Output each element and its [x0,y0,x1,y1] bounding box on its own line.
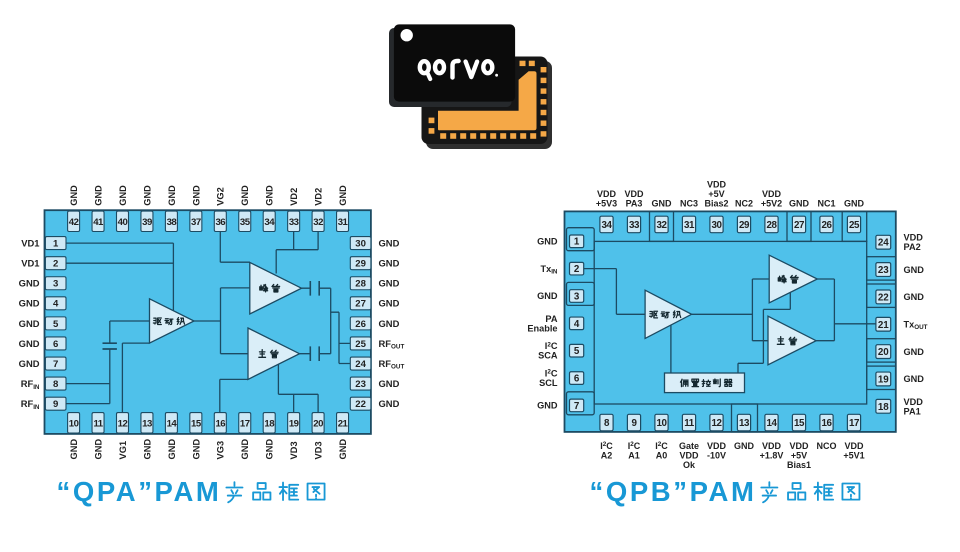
svg-text:VDD-10V: VDD-10V [707,441,727,461]
svg-text:VD2: VD2 [314,188,324,206]
svg-text:24: 24 [355,359,366,370]
svg-text:2: 2 [574,264,580,275]
svg-text:29: 29 [739,220,750,231]
svg-text:20: 20 [878,347,889,358]
svg-text:24: 24 [878,238,889,249]
svg-text:NC1: NC1 [817,199,835,209]
svg-text:GND: GND [19,298,40,309]
svg-text:GND: GND [537,401,558,411]
svg-text:VD2: VD2 [289,188,299,206]
svg-text:VDD+1.8V: VDD+1.8V [760,441,784,461]
svg-text:6: 6 [53,339,58,350]
svg-text:7: 7 [574,401,580,412]
svg-text:GND: GND [904,292,925,302]
svg-text:23: 23 [878,265,889,276]
svg-text:19: 19 [289,419,299,430]
svg-text:8: 8 [53,379,59,390]
svg-text:GND: GND [652,199,673,209]
svg-text:35: 35 [240,217,251,228]
svg-text:GND: GND [379,318,400,329]
svg-text:7: 7 [53,359,58,370]
svg-text:3: 3 [53,279,58,290]
svg-text:4: 4 [574,319,580,330]
svg-text:VG2: VG2 [216,187,226,206]
svg-text:GND: GND [904,374,925,384]
svg-text:I2CA2: I2CA2 [600,441,613,461]
svg-text:11: 11 [684,418,695,429]
svg-text:GND: GND [904,265,925,275]
svg-text:22: 22 [878,292,889,303]
svg-text:14: 14 [167,419,178,430]
svg-text:31: 31 [338,217,349,228]
svg-text:1: 1 [574,237,580,248]
svg-text:4: 4 [53,299,59,310]
svg-text:6: 6 [574,373,580,384]
svg-text:GND: GND [379,398,400,409]
svg-text:16: 16 [215,419,225,430]
svg-text:33: 33 [629,220,640,231]
svg-text:11: 11 [93,419,103,430]
svg-text:GND: GND [537,237,558,247]
svg-text:GND: GND [167,185,177,206]
svg-text:2: 2 [53,259,58,270]
svg-text:GND: GND [191,185,201,206]
svg-text:9: 9 [53,399,58,410]
svg-text:NCO: NCO [817,441,837,451]
svg-text:13: 13 [142,419,152,430]
svg-text:34: 34 [264,217,275,228]
svg-text:21: 21 [878,320,889,331]
svg-text:10: 10 [656,418,667,429]
svg-text:42: 42 [69,217,79,228]
svg-text:21: 21 [338,419,349,430]
svg-text:26: 26 [355,319,366,330]
svg-text:19: 19 [878,374,889,385]
svg-text:VDDPA1: VDDPA1 [904,397,924,417]
svg-text:“QPA”PAM: “QPA”PAM [57,476,222,507]
svg-text:25: 25 [849,220,860,231]
svg-text:GND: GND [69,439,79,460]
svg-text:30: 30 [711,220,722,231]
svg-text:GND: GND [191,439,201,460]
svg-text:GND: GND [904,347,925,357]
svg-text:NC3: NC3 [680,199,698,209]
svg-text:GND: GND [19,318,40,329]
svg-text:32: 32 [656,220,667,231]
svg-text:12: 12 [711,418,722,429]
svg-text:15: 15 [191,419,202,430]
svg-text:VG1: VG1 [118,441,128,460]
svg-text:28: 28 [766,220,777,231]
svg-text:GND: GND [789,199,810,209]
svg-text:GND: GND [265,185,275,206]
svg-text:29: 29 [355,259,366,270]
svg-text:20: 20 [313,419,323,430]
svg-text:27: 27 [355,299,366,310]
svg-text:12: 12 [118,419,128,430]
svg-text:32: 32 [313,217,323,228]
svg-text:GND: GND [118,185,128,206]
svg-text:VDD+5V3: VDD+5V3 [596,189,617,209]
svg-text:VD1: VD1 [21,258,39,269]
svg-text:GND: GND [844,199,865,209]
svg-text:GND: GND [379,278,400,289]
svg-text:15: 15 [794,418,805,429]
svg-text:GND: GND [19,358,40,369]
svg-text:23: 23 [355,379,366,390]
svg-text:31: 31 [684,220,695,231]
svg-text:18: 18 [264,419,275,430]
svg-text:GND: GND [265,439,275,460]
svg-text:GND: GND [537,291,558,301]
svg-text:I2CA1: I2CA1 [628,441,641,461]
svg-text:VDD+5V1: VDD+5V1 [843,441,864,461]
svg-text:39: 39 [142,217,152,228]
svg-text:VD1: VD1 [21,238,39,249]
svg-text:14: 14 [766,418,777,429]
svg-text:GND: GND [379,238,400,249]
svg-text:“QPB”PAM: “QPB”PAM [590,476,757,507]
svg-text:30: 30 [355,239,366,250]
svg-text:36: 36 [215,217,225,228]
svg-text:NC2: NC2 [735,199,753,209]
svg-text:GND: GND [69,185,79,206]
svg-text:GND: GND [167,439,177,460]
svg-text:VG3: VG3 [216,441,226,460]
svg-text:22: 22 [355,399,366,410]
svg-text:VDDPA2: VDDPA2 [904,233,924,253]
svg-text:I2CA0: I2CA0 [655,441,668,461]
svg-text:GND: GND [338,439,348,460]
svg-text:GND: GND [379,378,400,389]
svg-text:GND: GND [19,278,40,289]
svg-text:GND: GND [93,439,103,460]
svg-text:40: 40 [118,217,128,228]
svg-text:34: 34 [601,220,612,231]
svg-text:GND: GND [338,185,348,206]
svg-text:17: 17 [240,419,250,430]
svg-text:18: 18 [878,402,889,413]
svg-text:3: 3 [574,291,580,302]
svg-text:41: 41 [93,217,104,228]
svg-text:VDD+5V2: VDD+5V2 [761,189,782,209]
svg-text:28: 28 [355,279,366,290]
svg-text:26: 26 [821,220,832,231]
svg-text:1: 1 [53,239,59,250]
svg-text:VD3: VD3 [289,441,299,459]
svg-text:GND: GND [142,439,152,460]
svg-text:VD3: VD3 [314,441,324,459]
svg-text:10: 10 [69,419,79,430]
svg-text:33: 33 [289,217,299,228]
svg-text:38: 38 [167,217,178,228]
svg-text:GND: GND [379,258,400,269]
svg-text:27: 27 [794,220,805,231]
svg-text:25: 25 [355,339,366,350]
svg-text:5: 5 [574,346,580,357]
svg-text:GND: GND [379,298,400,309]
svg-text:16: 16 [821,418,832,429]
svg-text:GND: GND [734,441,755,451]
svg-text:17: 17 [849,418,860,429]
svg-text:GND: GND [240,439,250,460]
svg-text:GND: GND [142,185,152,206]
svg-text:13: 13 [739,418,750,429]
svg-text:GND: GND [240,185,250,206]
svg-text:VDDPA3: VDDPA3 [624,189,644,209]
svg-text:GND: GND [93,185,103,206]
svg-text:37: 37 [191,217,201,228]
svg-text:GND: GND [19,338,40,349]
svg-text:5: 5 [53,319,59,330]
